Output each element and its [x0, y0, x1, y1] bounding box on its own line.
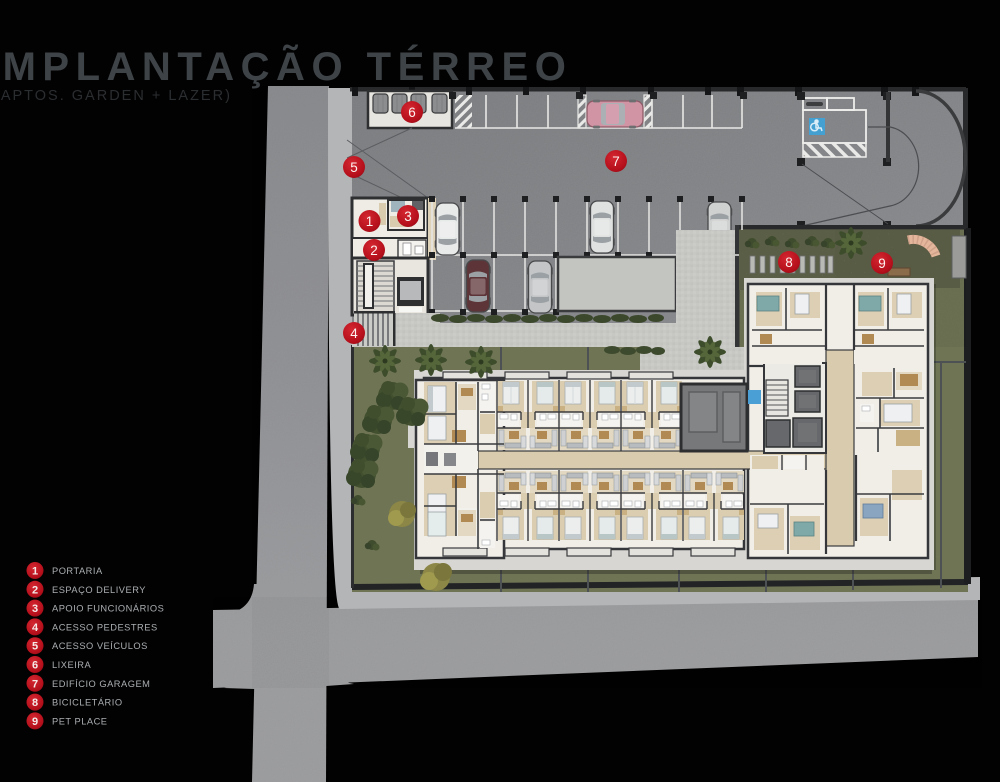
- svg-text:2: 2: [370, 243, 378, 258]
- svg-text:4: 4: [350, 326, 358, 341]
- svg-text:3: 3: [32, 603, 38, 615]
- svg-text:9: 9: [878, 256, 886, 271]
- svg-text:PET PLACE: PET PLACE: [52, 716, 107, 726]
- svg-text:3: 3: [404, 209, 412, 224]
- svg-text:1: 1: [32, 566, 38, 578]
- svg-text:LIXEIRA: LIXEIRA: [52, 660, 91, 670]
- svg-text:9: 9: [32, 716, 38, 728]
- svg-text:8: 8: [785, 255, 793, 270]
- svg-text:1: 1: [366, 214, 374, 229]
- svg-text:PORTARIA: PORTARIA: [52, 566, 103, 576]
- svg-text:IMPLANTAÇÃO TÉRREO: IMPLANTAÇÃO TÉRREO: [0, 43, 572, 89]
- svg-text:6: 6: [32, 660, 38, 672]
- svg-text:4: 4: [32, 622, 39, 634]
- svg-text:(APTOS. GARDEN + LAZER): (APTOS. GARDEN + LAZER): [0, 88, 232, 104]
- svg-text:EDIFÍCIO GARAGEM: EDIFÍCIO GARAGEM: [52, 679, 150, 689]
- svg-text:ACESSO PEDESTRES: ACESSO PEDESTRES: [52, 622, 158, 632]
- svg-text:7: 7: [32, 678, 38, 690]
- svg-text:ESPAÇO DELIVERY: ESPAÇO DELIVERY: [52, 585, 146, 595]
- svg-text:5: 5: [350, 160, 358, 175]
- svg-text:2: 2: [32, 584, 38, 596]
- svg-text:7: 7: [612, 154, 620, 169]
- svg-text:BICICLETÁRIO: BICICLETÁRIO: [52, 698, 123, 708]
- svg-text:APOIO FUNCIONÁRIOS: APOIO FUNCIONÁRIOS: [52, 604, 164, 614]
- svg-text:5: 5: [32, 641, 38, 653]
- svg-text:8: 8: [32, 697, 38, 709]
- svg-text:6: 6: [408, 105, 416, 120]
- svg-text:ACESSO VEÍCULOS: ACESSO VEÍCULOS: [52, 641, 148, 651]
